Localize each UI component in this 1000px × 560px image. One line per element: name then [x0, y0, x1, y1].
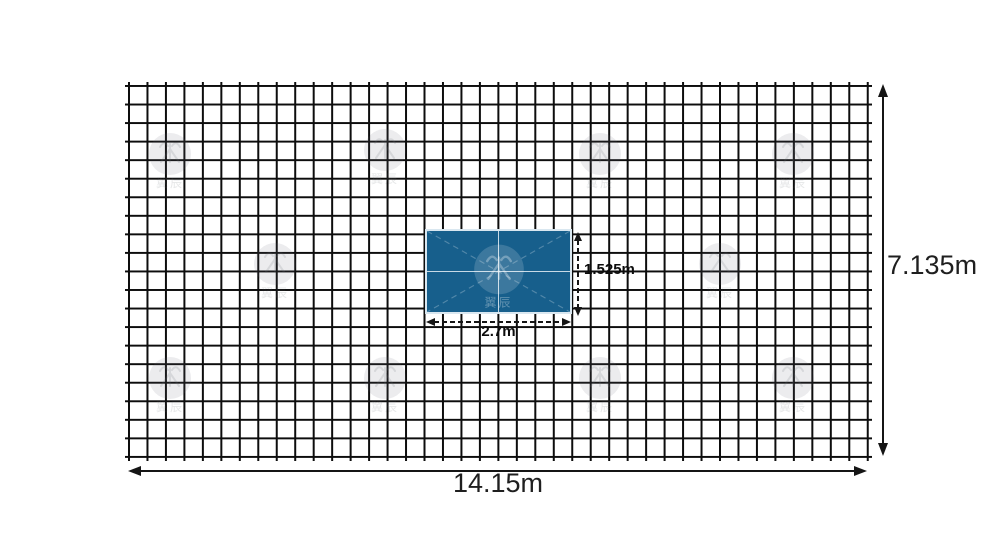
arrowhead-up-icon — [878, 84, 888, 97]
watermark: 翼辰 — [468, 243, 530, 308]
screen-height-dimension-line — [577, 240, 579, 308]
wall-height-dimension-line — [882, 94, 884, 446]
watermark-brand-text: 翼辰 — [354, 401, 416, 413]
arrowhead-right-icon — [854, 466, 867, 476]
yichen-logo-icon — [148, 132, 192, 176]
yichen-logo-icon — [578, 356, 622, 400]
yichen-logo-icon — [253, 242, 297, 286]
yichen-logo-icon — [363, 356, 407, 400]
watermark: 翼辰 — [569, 356, 631, 413]
watermark: 翼辰 — [139, 132, 201, 189]
wall-width-label: 14.15m — [378, 468, 618, 499]
led-screen: 翼辰 — [425, 229, 572, 314]
arrowhead-down-icon — [574, 307, 582, 316]
arrowhead-down-icon — [878, 443, 888, 456]
yichen-logo-icon — [771, 356, 815, 400]
watermark-brand-text: 翼辰 — [689, 287, 751, 299]
yichen-logo-icon — [771, 132, 815, 176]
watermark: 翼辰 — [139, 356, 201, 413]
watermark: 翼辰 — [569, 132, 631, 189]
watermark: 翼辰 — [354, 356, 416, 413]
yichen-logo-icon — [578, 132, 622, 176]
watermark-brand-text: 翼辰 — [139, 401, 201, 413]
watermark-brand-text: 翼辰 — [569, 177, 631, 189]
watermark-brand-text: 翼辰 — [354, 173, 416, 185]
watermark-brand-text: 翼辰 — [762, 401, 824, 413]
watermark-brand-text: 翼辰 — [468, 296, 530, 308]
watermark-brand-text: 翼辰 — [762, 177, 824, 189]
yichen-logo-icon — [698, 242, 742, 286]
screen-width-label: 2.7m — [425, 323, 572, 340]
screen-height-label: 1.525m — [584, 261, 635, 278]
watermark: 翼辰 — [244, 242, 306, 299]
watermark: 翼辰 — [762, 132, 824, 189]
yichen-logo-icon — [473, 243, 525, 295]
wall-height-label: 7.135m — [887, 250, 977, 281]
arrowhead-left-icon — [128, 466, 141, 476]
watermark: 翼辰 — [762, 356, 824, 413]
screen-size-diagram: 翼辰 翼辰 翼辰 翼辰 翼辰 翼辰 翼辰 翼辰 翼辰 翼辰 — [0, 0, 1000, 560]
watermark: 翼辰 — [689, 242, 751, 299]
arrowhead-up-icon — [574, 232, 582, 241]
watermark: 翼辰 — [354, 128, 416, 185]
yichen-logo-icon — [148, 356, 192, 400]
yichen-logo-icon — [363, 128, 407, 172]
watermark-brand-text: 翼辰 — [569, 401, 631, 413]
watermark-brand-text: 翼辰 — [139, 177, 201, 189]
watermark-brand-text: 翼辰 — [244, 287, 306, 299]
